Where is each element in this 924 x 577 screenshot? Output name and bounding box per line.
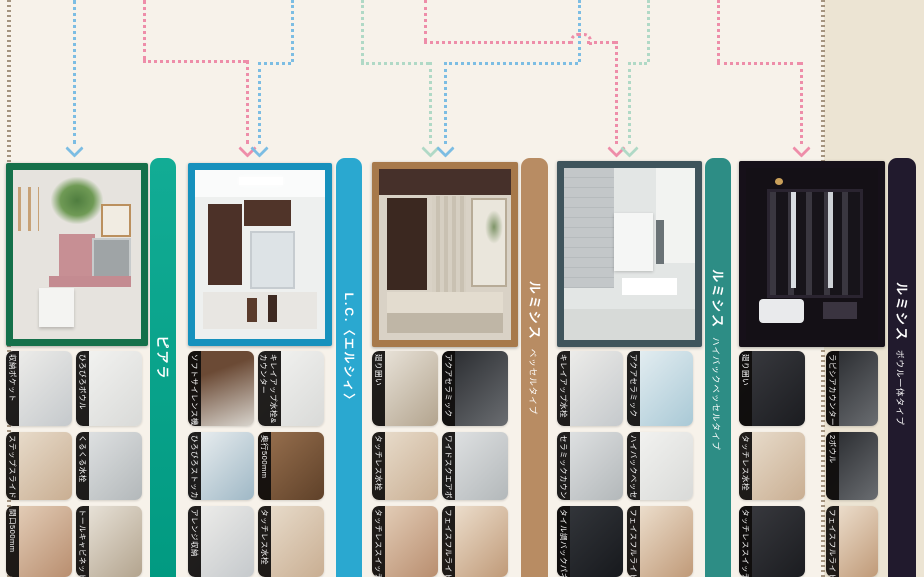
photo-detail xyxy=(18,187,38,231)
product-name: ルミシス xyxy=(527,281,542,341)
feature-thumbnail: 廻り囲い xyxy=(739,351,805,426)
feature-label: フェイスフルライト xyxy=(627,506,640,577)
photo-detail xyxy=(59,234,95,278)
feature-label: アレンジ収納 xyxy=(188,506,201,577)
photo-detail xyxy=(39,288,75,327)
feature-thumbnail: アクアセラミック xyxy=(442,351,508,426)
feature-thumbnail: フェイスフルライト xyxy=(627,506,693,577)
photo-detail xyxy=(268,295,277,322)
product-name: ルミシス xyxy=(710,269,725,329)
product-type: ベッセルタイプ xyxy=(528,349,538,416)
feature-label: タイル調バックパネル xyxy=(557,506,570,577)
photo-detail xyxy=(379,169,511,195)
photo-detail xyxy=(203,292,317,329)
feature-label: ハイバックベッセルボウル xyxy=(627,432,640,500)
photo-detail xyxy=(49,276,131,286)
product-type: ハイバックベッセルタイプ xyxy=(711,337,721,451)
product-photo-lumisis-vessel xyxy=(372,162,518,347)
feature-thumbnail: 収納ポケット xyxy=(6,351,72,426)
photo-detail xyxy=(767,189,863,298)
photo-detail xyxy=(387,198,427,290)
feature-thumbnail: タッチレス水栓 xyxy=(739,432,805,500)
feature-thumbnail: タッチレススイッチ xyxy=(372,506,438,577)
feature-thumbnail: 廻り囲い xyxy=(372,351,438,426)
feature-label: 2ボウル xyxy=(826,432,839,500)
photo-detail xyxy=(828,192,833,288)
feature-label: 廻り囲い xyxy=(372,351,385,426)
feature-label: キレイアップ水栓 xyxy=(557,351,570,426)
photo-detail xyxy=(622,278,677,295)
feature-thumbnail: ひろびろボウル xyxy=(76,351,142,426)
feature-label: ステップスライド xyxy=(6,432,19,500)
feature-label: 廻り囲い xyxy=(739,351,752,426)
feature-label: セラミックカウンター xyxy=(557,432,570,500)
feature-thumbnail: 2ボウル xyxy=(826,432,878,500)
feature-label: キレイアップ水栓&カウンター xyxy=(258,351,281,426)
feature-label: 間口500mm xyxy=(6,506,19,577)
photo-detail xyxy=(250,231,296,289)
feature-label: ソフトサイレンス機構 xyxy=(188,351,201,426)
feature-thumbnail: アレンジ収納 xyxy=(188,506,254,577)
photo-detail xyxy=(101,204,131,237)
photo-detail xyxy=(208,204,242,285)
feature-thumbnail: タッチレススイッチ xyxy=(739,506,805,577)
feature-thumbnail: キレイアップ水栓&カウンター xyxy=(258,351,324,426)
product-banner-lumisis-bowl: ルミシスボウル一体タイプ xyxy=(888,158,916,577)
product-banner-piara: ピアラ xyxy=(150,158,176,577)
feature-thumbnail: タッチレス水栓 xyxy=(372,432,438,500)
product-photo-lc xyxy=(188,163,332,346)
feature-label: フェイスフルライト xyxy=(442,506,455,577)
photo-detail xyxy=(432,196,466,292)
photo-detail xyxy=(51,177,102,224)
photo-detail xyxy=(387,292,503,313)
photo-detail xyxy=(564,309,695,340)
feature-label: アクアセラミック xyxy=(442,351,455,426)
feature-label: タッチレス水栓 xyxy=(372,432,385,500)
feature-thumbnail: 間口500mm xyxy=(6,506,72,577)
product-photo-lumisis-bowl xyxy=(739,161,885,347)
product-name: ピアラ xyxy=(155,335,170,380)
photo-detail xyxy=(564,168,614,288)
feature-label: タッチレス水栓 xyxy=(258,506,271,577)
photo-detail xyxy=(244,200,291,225)
catalog-page: ピアラ 収納ポケット ひろびろボウル ステップスライド くるくる水栓 間口500… xyxy=(0,0,924,577)
feature-thumbnail: 奥行500mm xyxy=(258,432,324,500)
feature-thumbnail: ソフトサイレンス機構 xyxy=(188,351,254,426)
photo-detail xyxy=(823,302,857,319)
product-banner-lc: L.C.〈エルシィ〉 xyxy=(336,158,362,577)
feature-thumbnail: ひろびろストッカー xyxy=(188,432,254,500)
feature-thumbnail: セラミックカウンター xyxy=(557,432,623,500)
photo-detail xyxy=(485,210,503,244)
feature-label: フェイスフルライト xyxy=(826,506,839,577)
feature-label: ひろびろストッカー xyxy=(188,432,201,500)
feature-thumbnail: トールキャビネット xyxy=(76,506,142,577)
photo-detail xyxy=(656,220,664,265)
feature-thumbnail: タッチレス水栓 xyxy=(258,506,324,577)
feature-thumbnail: ワイドスクエアボウル xyxy=(442,432,508,500)
product-photo-piara xyxy=(6,163,148,346)
feature-thumbnail: ハイバックベッセルボウル xyxy=(627,432,693,500)
product-name: ルミシス xyxy=(894,282,909,342)
feature-thumbnail: タイル調バックパネル xyxy=(557,506,623,577)
feature-label: トールキャビネット xyxy=(76,506,89,577)
product-photo-lumisis-highback xyxy=(557,161,702,347)
feature-label: 収納ポケット xyxy=(6,351,19,426)
feature-label: 奥行500mm xyxy=(258,432,271,500)
photo-detail xyxy=(759,299,804,323)
feature-label: アクアセラミック xyxy=(627,351,640,426)
product-banner-lumisis-vessel: ルミシスベッセルタイプ xyxy=(521,158,548,577)
feature-label: ひろびろボウル xyxy=(76,351,89,426)
feature-thumbnail: キレイアップ水栓 xyxy=(557,351,623,426)
photo-detail xyxy=(239,177,283,185)
product-name: L.C.〈エルシィ〉 xyxy=(342,293,356,408)
feature-thumbnail: ステップスライド xyxy=(6,432,72,500)
photo-detail xyxy=(387,313,503,334)
feature-thumbnail: くるくる水栓 xyxy=(76,432,142,500)
feature-label: タッチレススイッチ xyxy=(372,506,385,577)
feature-label: ラピシアカウンター xyxy=(826,351,839,426)
feature-thumbnail: アクアセラミック xyxy=(627,351,693,426)
photo-detail xyxy=(791,192,796,288)
feature-label: くるくる水栓 xyxy=(76,432,89,500)
photo-detail xyxy=(614,213,653,271)
feature-thumbnail: フェイスフルライト xyxy=(826,506,878,577)
product-type: ボウル一体タイプ xyxy=(895,350,905,426)
feature-label: タッチレススイッチ xyxy=(739,506,752,577)
feature-thumbnail: フェイスフルライト xyxy=(442,506,508,577)
feature-label: タッチレス水栓 xyxy=(739,432,752,500)
feature-thumbnail: ラピシアカウンター xyxy=(826,351,878,426)
feature-label: ワイドスクエアボウル xyxy=(442,432,455,500)
product-banner-lumisis-highback: ルミシスハイバックベッセルタイプ xyxy=(705,158,731,577)
photo-detail xyxy=(247,298,257,322)
